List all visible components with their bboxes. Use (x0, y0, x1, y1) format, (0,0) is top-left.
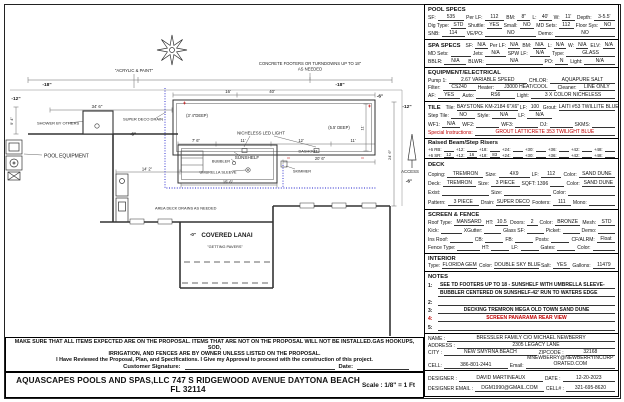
field-label: W: (568, 43, 574, 49)
field-value: 8" (517, 14, 530, 21)
access-tree-icon (408, 134, 416, 168)
label-dim-11-a: 11' (240, 138, 245, 143)
screen-walls (273, 206, 390, 336)
note-row: 3:DECKING TREMRON MEGA OLD TOWN SAND DUN… (428, 307, 615, 314)
field-value: 3 PIECE (448, 199, 479, 206)
field-label: Color: (563, 172, 576, 178)
sun-icon (157, 35, 187, 65)
dimension-lines (14, 73, 397, 206)
field-label: LF: (532, 172, 539, 178)
label-minus12-left: -12" (11, 96, 20, 102)
note-row: 1:SEE TD FOOTERS UP TO 18 - SUNSHELF WIT… (428, 282, 615, 289)
field-label: Gallons: (572, 263, 590, 269)
field-row: TILETile:BAYSTONE KM-2184 6"X6"LF:100Gro… (428, 104, 615, 111)
field-label: Shuttle: (468, 23, 485, 29)
field-label: Doors: (510, 220, 525, 226)
label-acrylic-paint: "ACRYLIC & PAINT" (115, 68, 154, 73)
note-text: SCREEN PANARAMA REAR VIEW (438, 315, 615, 322)
field-label: LF: (520, 105, 527, 111)
field-value (598, 227, 615, 234)
label-concrete-footers-1: CONCRETE FOOTERS OR TURNDOWNS UP TO 18" (259, 61, 362, 66)
field-label: PO: (545, 59, 554, 65)
field-value: STD (598, 219, 615, 226)
field-label: CITY : (428, 350, 442, 356)
field-value (450, 236, 473, 243)
field-label: Footers: (532, 200, 550, 206)
field-value: 111 (553, 199, 571, 206)
field-row: DESIGNER EMAIL :DGM1990@GMAIL.COMCELL# :… (428, 385, 615, 392)
field-label: Light: (517, 93, 529, 99)
field-row: Exist: Size: Color: (428, 189, 615, 196)
field-label: Color: (577, 245, 590, 251)
field-label: Style: (477, 113, 490, 119)
field-value: N/A (508, 42, 520, 49)
scale-note: Scale : 1/8" = 1 Ft (362, 382, 415, 389)
field-value (550, 180, 564, 187)
field-label: Gates: (541, 245, 556, 251)
label-dim-11-right: 11' (360, 125, 365, 130)
field-value (563, 227, 580, 234)
field-value: SAND DUNE (582, 180, 615, 187)
label-getting-pavers: "GETTING PAVERS" (207, 245, 243, 249)
field-value: LAITI #53 TWILLITE BLUE (559, 104, 615, 111)
field-row: Pattern:3 PIECEDrain:SUPER DECOFooters:1… (428, 199, 615, 206)
label-dim-40: 40' (269, 89, 275, 94)
shower-box (83, 111, 113, 134)
section-title: INTERIOR (428, 256, 615, 262)
field-label: Color: (553, 190, 566, 196)
field-row: Step Tile:NOStyle:N/ALF:N/A (428, 112, 615, 119)
field-label: MD Sets: (536, 23, 557, 29)
label-nicheless-led-light: NICHELESS LED LIGHT (237, 131, 285, 136)
field-row: WF1:N/AWF2: WF3: DJ: SKMS: (428, 121, 615, 128)
section-title-inline: TILE (428, 105, 441, 111)
label-dim-7-6: 7' 6" (192, 138, 200, 143)
section-title-inline: SPA SPECS (428, 43, 461, 49)
field-label: Demo: (582, 228, 597, 234)
field-label: LF: (511, 245, 518, 251)
field-value: MANSARD (454, 219, 484, 226)
box-customer: NAME :BRESSLER FAMILY C/O MICHAEL NEWBER… (424, 333, 619, 371)
field-value: BRESSLER FAMILY C/O MICHAEL NEWBERRY (447, 335, 615, 342)
section-title: DECK (428, 162, 615, 168)
field-value (592, 121, 615, 128)
field-label: Size: (485, 172, 496, 178)
customer-signature-line[interactable] (185, 363, 335, 370)
field-value: SAND DUNE (579, 171, 615, 178)
field-label: SF: (466, 43, 474, 49)
field-value: NO (520, 22, 535, 29)
field-value: N/A (603, 42, 615, 49)
field-label: AF: (428, 93, 436, 99)
field-label: Special Instructions: (428, 130, 473, 136)
field-value: 40' (539, 14, 552, 21)
field-value (515, 236, 533, 243)
label-pool-equipment: POOL EQUIPMENT (44, 154, 89, 160)
field-label: FB: (505, 237, 513, 243)
field-row: Deck:TREMRONSize:3 PIECESQFT: 1396 Color… (428, 180, 615, 187)
field-value (593, 244, 615, 251)
disclaimer-box: MAKE SURE THAT ALL ITEMS EXPECTED ARE ON… (5, 337, 424, 372)
field-value: N (555, 58, 568, 65)
field-label: XGutter: (464, 228, 483, 234)
field-value: 535 (438, 14, 464, 21)
field-value: 386-801-2441 (444, 362, 508, 369)
date-line[interactable] (357, 363, 409, 370)
field-label: CHLOR: (529, 78, 548, 84)
field-value: N/A (530, 50, 550, 57)
field-label: ELV: (590, 43, 600, 49)
field-label: HT: (486, 220, 494, 226)
field-label: L: (548, 43, 552, 49)
pool-equipment-pad (6, 140, 22, 180)
date-label: Date: (339, 364, 354, 370)
field-label: Glass SF: (503, 228, 525, 234)
section-title: POOL SPECS (428, 7, 615, 13)
field-value: DGM1990@GMAIL.COM (475, 385, 544, 392)
field-value: 12-20-2023 (563, 375, 615, 382)
field-row: Kick: XGutter: Glass SF: Picket: Demo: (428, 227, 615, 234)
note-number: 3: (428, 308, 436, 314)
field-label: Kick: (428, 228, 439, 234)
field-label: Floor Sys: (576, 23, 599, 29)
field-value: N/A (576, 42, 588, 49)
label-minus6-deck: -6" (130, 132, 137, 138)
note-number: 2: (428, 300, 436, 306)
field-value: NO (600, 22, 615, 29)
label-minus0-lanai: -0" (190, 232, 196, 237)
field-value: SUPER DECO (496, 199, 530, 206)
field-label: WF2: (462, 122, 474, 128)
note-text: SEE TD FOOTERS UP TO 18 - SUNSHELF WITH … (438, 282, 615, 289)
field-label: VE/PO: (467, 31, 484, 37)
field-label: Jets: (473, 51, 484, 57)
customer-signature-label: Customer Signature: (123, 364, 180, 370)
field-label: Exist: (428, 190, 440, 196)
field-label: DATE : (545, 376, 561, 382)
label-concrete-footers-2: AS NEEDED (298, 67, 322, 72)
company-footer: AQUASCAPES POOLS AND SPAS,LLC 747 S RIDG… (5, 372, 424, 398)
field-label: Type: (428, 263, 440, 269)
label-dim-12: 12' (298, 138, 304, 143)
field-value: CS240 (443, 84, 476, 91)
field-label: Per LF: (490, 43, 506, 49)
field-row: AF:YESAuto:RS6Light:3 X COLOR NICHELESS (428, 92, 615, 99)
field-row: MD Sets: Jets:N/ASPW LF:N/AType:GLASS (428, 50, 615, 57)
field-label: Color: (479, 263, 492, 269)
field-value: NEW SMYRNA BEACH (444, 349, 537, 356)
label-dim-9-4: 9' 4" (9, 117, 14, 125)
field-row: Dig Type:STDShuttle:YESSmall:NOMD Sets:1… (428, 22, 615, 29)
field-value: BAYSTONE KM-2184 6"X6" (457, 104, 518, 111)
site-plan-drawing: "ACRYLIC & PAINT" CONCRETE FOOTERS OR TU… (0, 0, 424, 337)
note-number: 1: (428, 283, 436, 289)
field-value: 11' (562, 14, 575, 21)
label-minus6-right-top: -6" (377, 94, 384, 100)
field-value: YES (438, 92, 461, 99)
field-value (485, 236, 503, 243)
field-value: 3 X COLOR NICHELESS (531, 92, 615, 99)
field-row: ADDRESS :2305 LEGACY LANE (428, 342, 615, 349)
label-dim-16: 16' (225, 89, 231, 94)
field-label: Color: (566, 181, 579, 187)
field-value: AQUAPURE SALT (550, 77, 615, 84)
field-value: GROUT LATTICRETE 353 TWILIGHT BLUE (475, 129, 615, 136)
note-row: 5: (428, 324, 615, 331)
field-label: Step Tile: (428, 113, 449, 119)
field-value: YES (553, 262, 570, 269)
field-value: 112 (541, 171, 562, 178)
field-label: SNB: (428, 31, 440, 37)
field-value (476, 121, 499, 128)
field-value: 112 (559, 22, 574, 29)
field-label: CELL# : (546, 386, 564, 392)
field-row: SNB:114VE/PO:NODemo:NO (428, 30, 615, 37)
field-value: 2.67 VARIABLE SPEED (449, 77, 527, 84)
label-skimmer: SKIMMER (293, 169, 311, 174)
field-label: NAME : (428, 336, 445, 342)
field-label: W: (554, 15, 560, 21)
label-shower-by-others: SHOWER BY OTHERS (37, 121, 79, 126)
field-value: N/A (442, 121, 460, 128)
field-label: CB: (475, 237, 483, 243)
field-value: 11479 (593, 262, 615, 269)
company-name: AQUASCAPES POOLS AND SPAS,LLC 747 S RIDG… (14, 376, 362, 394)
field-value: 3 PIECE (491, 180, 519, 187)
field-label: Roof Type: (428, 220, 452, 226)
field-label: Posts: (535, 237, 549, 243)
field-label: CF/ALRM: (571, 237, 594, 243)
field-value: N/A (485, 50, 505, 57)
note-text (438, 324, 615, 331)
field-value: NO (451, 112, 475, 119)
field-label: SKMS: (575, 122, 591, 128)
field-label: SPW LF: (508, 51, 528, 57)
field-value (527, 227, 544, 234)
field-value: N/A (444, 58, 466, 65)
label-dim-15-6: 15' 6" (223, 180, 234, 185)
umbrella-sleeve-icon (246, 168, 250, 172)
field-value (491, 244, 509, 251)
field-value (557, 244, 575, 251)
field-label: Heater: (478, 85, 494, 91)
label-minus6-access: -6" (406, 179, 413, 185)
field-value: TREMRON (443, 180, 476, 187)
box-designer: DESIGNER :DAVID MARTINEAUXDATE :12-20-20… (424, 370, 619, 397)
label-super-deco-drain: SUPER DECO DRAIN (123, 117, 163, 122)
field-value: J3000 HEAT/COOL (496, 84, 556, 91)
label-area-deck-drains: AREA DECK DRAINS AS NEEDED (155, 206, 217, 211)
field-value: BRONZE (555, 219, 581, 226)
field-value: DAVID MARTINEAUX (459, 375, 543, 382)
field-label: Type: (552, 51, 564, 57)
field-row: SPA SPECSSF:N/APer LF:N/ABM:N/AL:N/AW:N/… (428, 42, 615, 49)
bubbler-icon (232, 161, 235, 164)
field-label: L: (532, 15, 536, 21)
field-label: ADDRESS : (428, 343, 455, 349)
label-sunshelf: SUNSHELF (235, 155, 260, 160)
box-interior: INTERIORType:FLORIDA GEMColor:DOUBLE SKY… (424, 253, 619, 272)
field-label: BBLR: (428, 59, 442, 65)
label-covered-lanai: COVERED LANAI (201, 232, 253, 239)
field-value (441, 227, 462, 234)
label-access: ACCESS (401, 169, 419, 174)
field-label: HT: (482, 245, 490, 251)
label-dim-11-b: 11' (350, 138, 355, 143)
field-label: CELL: (428, 363, 442, 369)
note-text: BUBBLER CENTERED ON SUNSHELF-42' RUN TO … (438, 290, 615, 297)
field-value (442, 189, 489, 196)
field-value: MNEWBERRY@NEWBERRYINCORPORATED.COM (526, 356, 615, 369)
label-depth-3-4: (3' 4"DEEP) (186, 113, 208, 118)
field-label: Fence Type: (428, 245, 455, 251)
field-label: Auto: (462, 93, 474, 99)
field-value: 112 (485, 14, 505, 21)
label-minus12-right: -12" (402, 104, 411, 110)
field-value: 114 (442, 30, 465, 37)
field-value: 3-5.5' (594, 14, 615, 21)
field-label: DJ: (540, 122, 548, 128)
field-label: Small: (504, 23, 518, 29)
disclaimer-line-1: MAKE SURE THAT ALL ITEMS EXPECTED ARE ON… (12, 339, 417, 351)
spec-panel: POOL SPECSSF:535Per LF:112BM:8"L:40'W:11… (424, 5, 619, 397)
box-pool-specs: POOL SPECSSF:535Per LF:112BM:8"L:40'W:11… (424, 4, 619, 40)
label-dim-14-2: 14' 2" (142, 167, 153, 172)
field-label: WF3: (501, 122, 513, 128)
label-dim-20-6: 20' 6" (315, 156, 326, 161)
field-row: CELL:386-801-2441Email:MNEWBERRY@NEWBERR… (428, 356, 615, 369)
field-row: Type:FLORIDA GEMColor:DOUBLE SKY BLUESal… (428, 262, 615, 269)
field-label: Mono: (573, 200, 587, 206)
field-value (554, 113, 615, 119)
field-row: Pump 1:2.67 VARIABLE SPEEDCHLOR:AQUAPURE… (428, 77, 615, 84)
note-text: DECKING TREMRON MEGA OLD TOWN SAND DUNE (438, 307, 615, 314)
field-label: MD Sets: (428, 51, 449, 57)
field-row: Filter:CS240Heater:J3000 HEAT/COOLCleane… (428, 84, 615, 91)
field-value: 4X9 (499, 171, 530, 178)
note-number: 4: (428, 316, 436, 322)
field-value: Float (597, 236, 615, 243)
field-value: NO (485, 30, 536, 37)
field-row: Special Instructions:GROUT LATTICRETE 35… (428, 129, 615, 136)
deck-edges (10, 90, 402, 206)
outdoor-kitchen (116, 174, 128, 222)
field-label: Color: (540, 220, 553, 226)
lanai-paver-band (182, 262, 272, 283)
field-label: BM: (506, 15, 515, 21)
label-dim-24-6: 24' 6" (387, 149, 392, 160)
field-value: N/A (527, 112, 551, 119)
field-row: Fence Type: HT: LF: Gates: Color: (428, 244, 615, 251)
led-light-icon (242, 149, 247, 153)
field-label: Drain: (481, 200, 494, 206)
field-label: Tile: (446, 105, 455, 111)
field-label: Salt: (541, 263, 551, 269)
field-value (568, 189, 615, 196)
field-label: Cleaner: (558, 85, 577, 91)
signature-row: Customer Signature: Date: (12, 363, 417, 370)
field-value (457, 244, 479, 251)
field-value: STD (451, 22, 466, 29)
field-value: 321-695-8620 (566, 385, 615, 392)
field-row: Coping:TREMRONSize:4X9LF:112Color:SAND D… (428, 171, 615, 178)
field-label: SF: (428, 15, 436, 21)
field-label: Size: (491, 190, 502, 196)
field-value (515, 121, 538, 128)
note-text (438, 299, 615, 306)
field-label: Coping: (428, 172, 445, 178)
box-deck: DECKCoping:TREMRONSize:4X9LF:112Color:SA… (424, 158, 619, 210)
field-label: Deck: (428, 181, 441, 187)
field-label: Filter: (428, 85, 441, 91)
field-label: Mesh: (582, 220, 596, 226)
field-label: DESIGNER EMAIL : (428, 386, 473, 392)
box-equipment-electrical: EQUIPMENT/ELECTRICALPump 1:2.67 VARIABLE… (424, 67, 619, 102)
field-value: YES (487, 22, 502, 29)
field-value: 2 (527, 219, 538, 226)
field-label: BM: (522, 43, 531, 49)
label-depth-5-5: (5.5' DEEP) (328, 125, 350, 130)
field-label: Dig Type: (428, 23, 449, 29)
field-value (550, 121, 573, 128)
field-value: N/A (475, 42, 487, 49)
field-label: BLWR: (468, 59, 483, 65)
note-row: BUBBLER CENTERED ON SUNSHELF-42' RUN TO … (428, 290, 615, 297)
field-label: Grout: (543, 105, 557, 111)
field-value: N/A (584, 58, 615, 65)
field-value: 100 (529, 104, 541, 111)
field-label: Pump 1: (428, 78, 447, 84)
field-label: WF1: (428, 122, 440, 128)
note-row: 4:SCREEN PANARAMA REAR VIEW (428, 315, 615, 322)
field-value (451, 50, 471, 57)
box-screen-fence: SCREEN & FENCERoof Type:MANSARDHT:10.5Do… (424, 209, 619, 254)
field-value: GLASS (566, 50, 615, 57)
field-value: DOUBLE SKY BLUE (494, 262, 539, 269)
label-minus18-left: -18" (42, 82, 51, 88)
field-value: 10.5 (495, 219, 508, 226)
field-label: Email: (510, 363, 524, 369)
field-value: N/A (533, 42, 545, 49)
label-umbrella-sleeve: UMBRELLA SLEEVE (200, 170, 237, 175)
field-value (484, 227, 501, 234)
field-value (589, 199, 615, 206)
field-label: Depth: (577, 15, 592, 21)
field-value: N/A (486, 58, 543, 65)
field-label: Light: (570, 59, 582, 65)
section-title: SCREEN & FENCE (428, 212, 615, 218)
field-row: Ins Roof: CB: FB: Posts: CF/ALRM:Float (428, 236, 615, 243)
field-value: N/A (492, 112, 516, 119)
field-value: LINE ONLY (579, 84, 615, 91)
field-value (521, 244, 539, 251)
note-row: 2: (428, 299, 615, 306)
plan-sheet: "ACRYLIC & PAINT" CONCRETE FOOTERS OR TU… (0, 0, 624, 402)
field-row: SF:535Per LF:112BM:8"L:40'W:11'Depth:3-5… (428, 14, 615, 21)
field-label: DESIGNER : (428, 376, 457, 382)
field-value: TREMRON (447, 171, 483, 178)
field-value: FLORIDA GEM (442, 262, 477, 269)
field-value (551, 236, 569, 243)
field-label: Per LF: (466, 15, 482, 21)
field-value: N/A (554, 42, 566, 49)
section-title: NOTES (428, 274, 615, 280)
label-dim-34-6: 34' 6" (92, 104, 103, 109)
field-label: LF: (518, 113, 525, 119)
field-value: NO (555, 30, 615, 37)
box-tile: TILETile:BAYSTONE KM-2184 6"X6"LF:100Gro… (424, 101, 619, 139)
field-label: Demo: (538, 31, 553, 37)
